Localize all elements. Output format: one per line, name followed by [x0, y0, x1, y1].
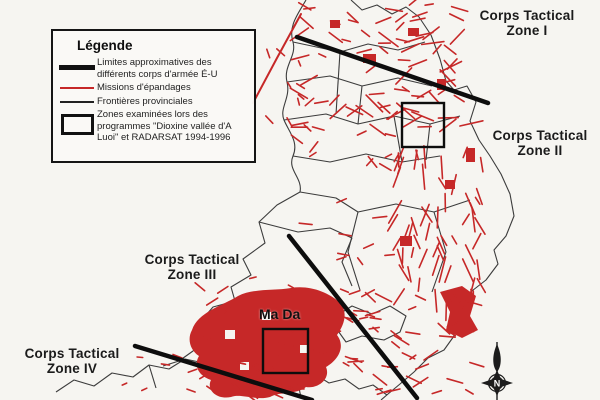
spray-mission-line-symbol	[60, 87, 94, 89]
legend-item-label: Missions d'épandages	[97, 82, 249, 94]
legend-item-label: Zones examinées lors des programmes "Dio…	[97, 109, 249, 144]
scanned-map-page: N Corps Tactical Zone I Corps Tactical Z…	[0, 0, 600, 400]
legend-item-spray-missions: Missions d'épandages	[57, 82, 249, 94]
examined-zone-rect-symbol	[61, 114, 94, 135]
zone-label-corps-tactical-zone-4: Corps Tactical Zone IV	[2, 346, 142, 376]
legend-item-corps-limits: Limites approximatives des différents co…	[57, 57, 249, 80]
corps-boundary-line-symbol	[59, 65, 95, 70]
legend-item-examined-zones: Zones examinées lors des programmes "Dio…	[57, 109, 249, 144]
legend-item-label: Limites approximatives des différents co…	[97, 57, 249, 80]
zone-label-corps-tactical-zone-3: Corps Tactical Zone III	[122, 252, 262, 282]
zone-label-corps-tactical-zone-1: Corps Tactical Zone I	[457, 8, 597, 38]
legend-item-label: Frontières provinciales	[97, 96, 249, 108]
legend-item-province-borders: Frontières provinciales	[57, 96, 249, 108]
legend-title: Légende	[77, 38, 249, 53]
north-arrow-icon: N	[481, 342, 513, 400]
province-border-line-symbol	[60, 101, 94, 103]
place-label-ma-da: Ma Da	[259, 306, 300, 322]
compass-north-letter: N	[494, 379, 501, 389]
legend: Légende Limites approximatives des diffé…	[51, 29, 256, 163]
zone-label-corps-tactical-zone-2: Corps Tactical Zone II	[470, 128, 600, 158]
